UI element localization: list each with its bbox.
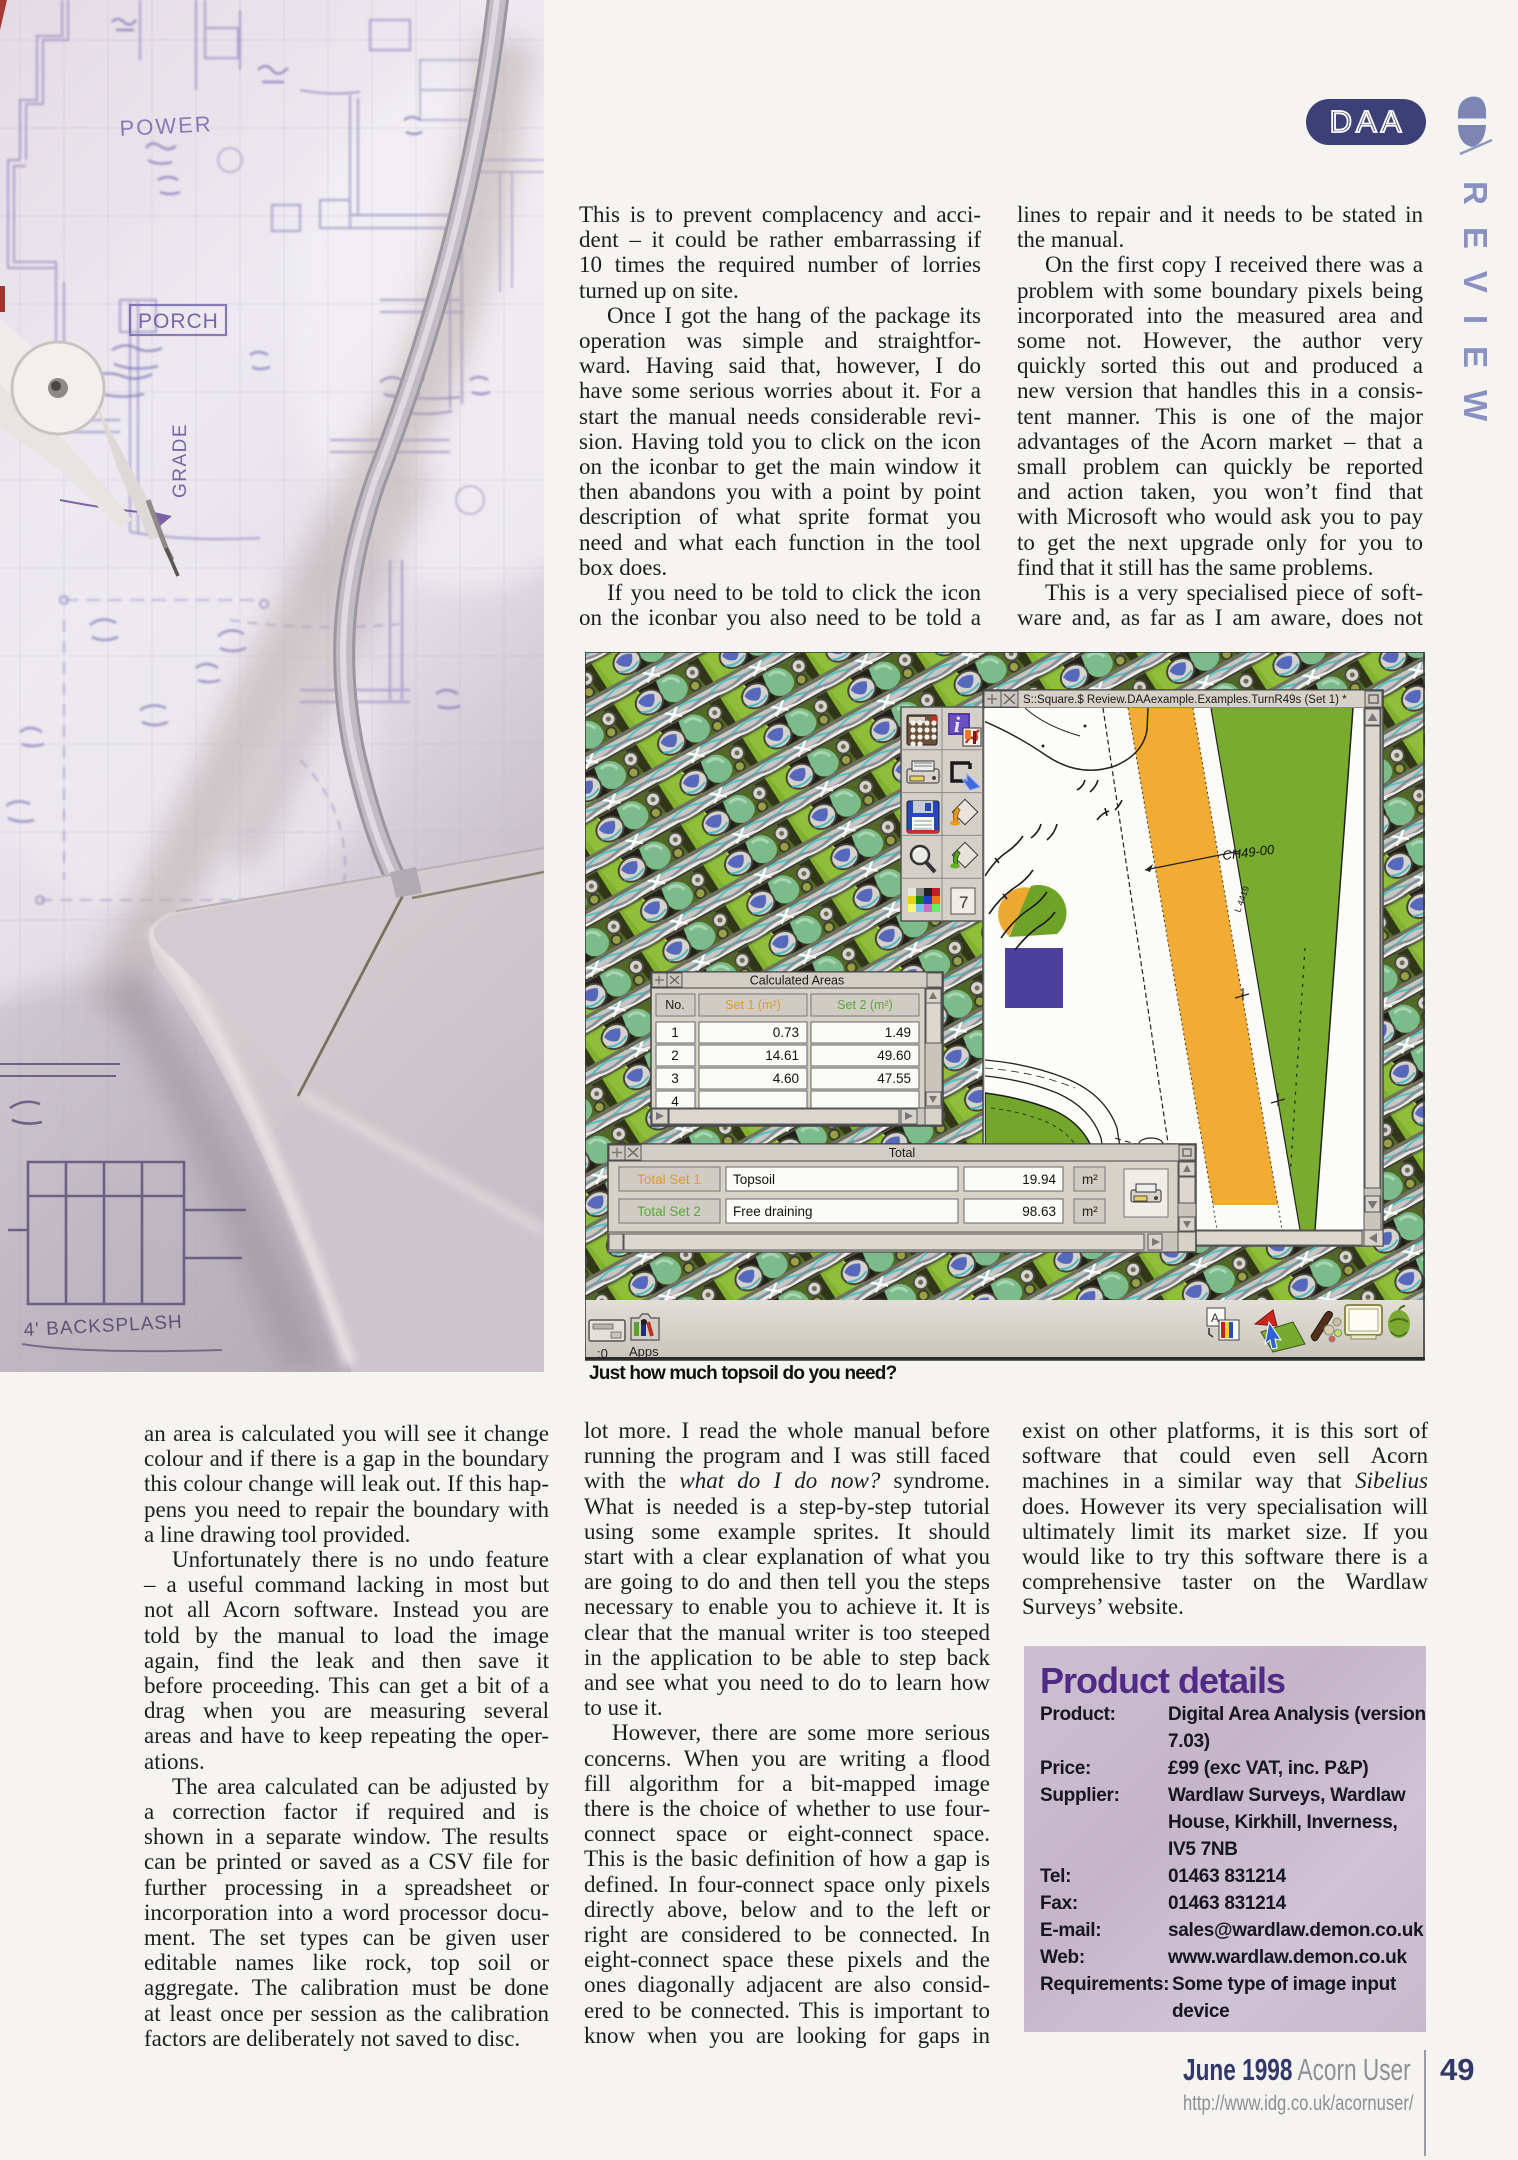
- svg-text:Total Set 1: Total Set 1: [637, 1172, 701, 1187]
- svg-text:PORCH: PORCH: [138, 310, 219, 333]
- svg-text:49.60: 49.60: [877, 1048, 911, 1063]
- svg-text:Apps: Apps: [629, 1344, 659, 1359]
- svg-text:POWER: POWER: [119, 111, 213, 141]
- svg-text:A: A: [1211, 1311, 1219, 1325]
- svg-text:0.73: 0.73: [773, 1025, 799, 1040]
- svg-text:m²: m²: [1082, 1204, 1098, 1219]
- svg-text:14.61: 14.61: [765, 1048, 799, 1063]
- svg-text:Set 1 (m²): Set 1 (m²): [725, 998, 781, 1012]
- svg-text::0: :0: [597, 1346, 608, 1361]
- svg-text:Total: Total: [889, 1146, 915, 1160]
- svg-text:i: i: [954, 712, 961, 737]
- svg-text:Free draining: Free draining: [733, 1204, 813, 1219]
- svg-text:1: 1: [671, 1025, 679, 1040]
- svg-text:1.49: 1.49: [885, 1025, 911, 1040]
- svg-text:98.63: 98.63: [1022, 1204, 1056, 1219]
- svg-text:No.: No.: [665, 998, 684, 1012]
- svg-text:Set 2 (m²): Set 2 (m²): [837, 998, 893, 1012]
- svg-text:Topsoil: Topsoil: [733, 1172, 775, 1187]
- svg-text:S::Square.$ Review.DAAexample.: S::Square.$ Review.DAAexample.Examples.T…: [1023, 694, 1347, 706]
- svg-text:7: 7: [959, 893, 968, 912]
- svg-text:47.55: 47.55: [877, 1071, 911, 1086]
- svg-text:m²: m²: [1082, 1172, 1098, 1187]
- svg-text:Calculated Areas: Calculated Areas: [750, 974, 845, 988]
- svg-text:3: 3: [671, 1071, 679, 1086]
- svg-text:Total Set 2: Total Set 2: [637, 1204, 701, 1219]
- svg-text:GRADE: GRADE: [170, 423, 191, 498]
- svg-text:2: 2: [671, 1048, 679, 1063]
- svg-text:19.94: 19.94: [1022, 1172, 1056, 1187]
- svg-text:4.60: 4.60: [773, 1071, 799, 1086]
- svg-text:4: 4: [671, 1094, 679, 1109]
